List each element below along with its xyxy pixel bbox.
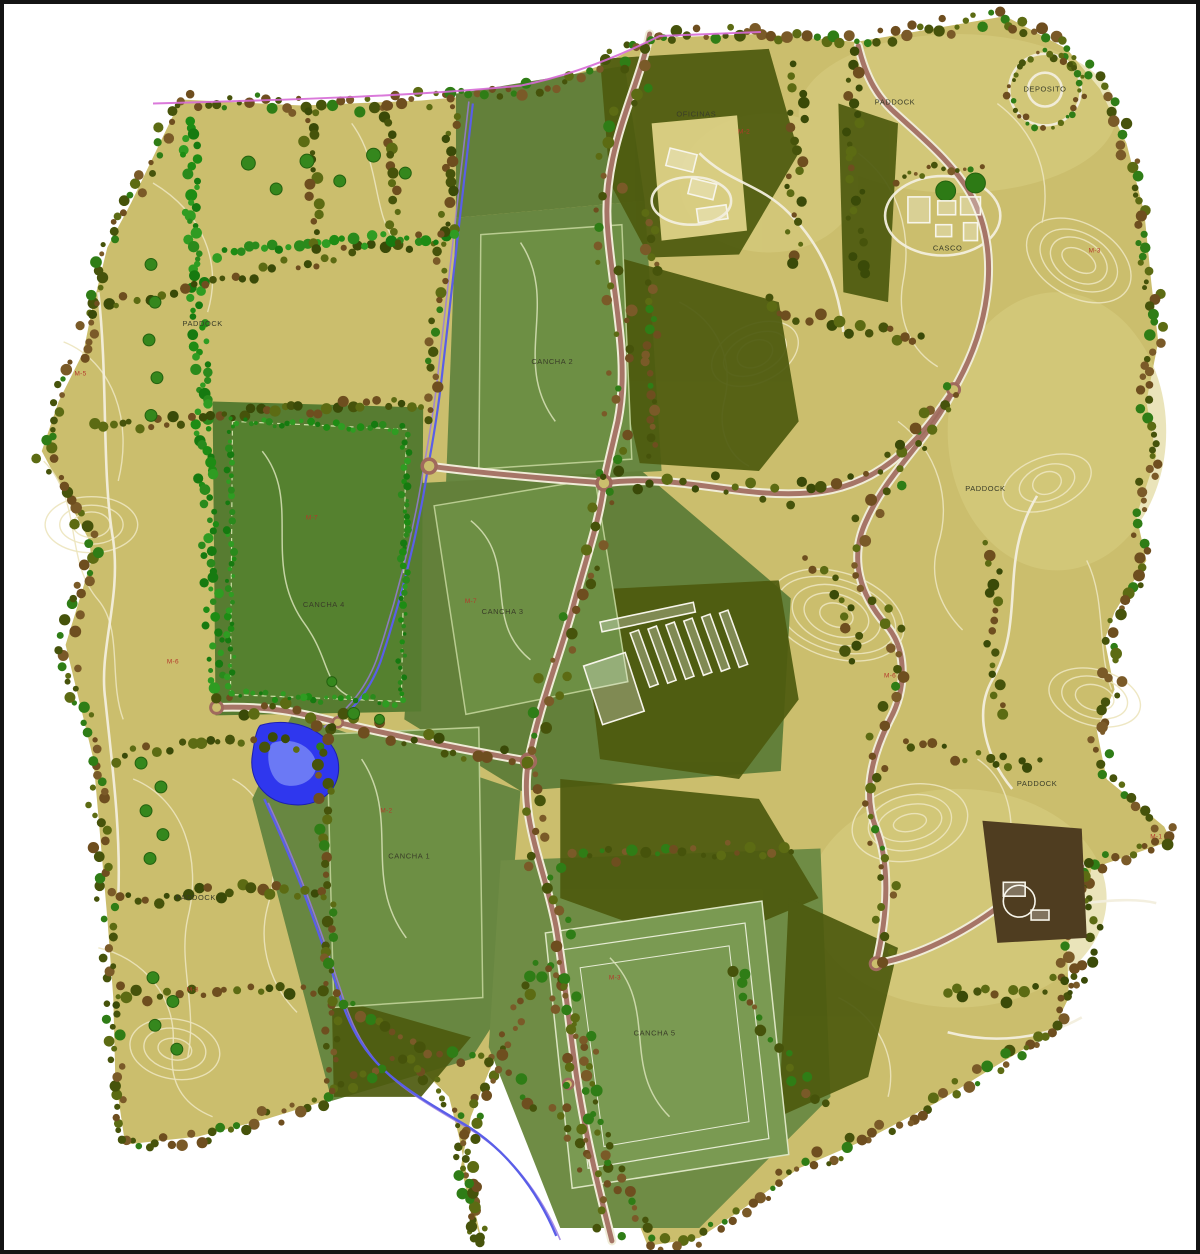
- tree-dot: [888, 948, 895, 955]
- tree-dot: [640, 244, 651, 255]
- tree-dot: [299, 419, 304, 424]
- tree-dot: [441, 268, 447, 274]
- tree-dot: [304, 192, 313, 201]
- tree-dot: [606, 370, 612, 376]
- tree-dot: [1133, 192, 1138, 197]
- tree-dot: [652, 266, 662, 276]
- tree-dot: [569, 646, 577, 654]
- tree-dot: [76, 589, 86, 599]
- tree-dot: [784, 184, 789, 189]
- tree-dot: [243, 688, 249, 694]
- tree-dot: [395, 658, 401, 664]
- tree-dot: [581, 1070, 592, 1081]
- tree-dot: [1141, 231, 1148, 238]
- tree-dot: [716, 851, 726, 861]
- tree-dot: [395, 239, 402, 246]
- tree-dot: [561, 1005, 572, 1016]
- tree-dot: [855, 320, 866, 331]
- tree-dot: [460, 1165, 466, 1171]
- tree-dot: [414, 1065, 422, 1073]
- map-canvas[interactable]: PADDOCK PADDOCK PADDOCK PADDOCK PADDOCK …: [0, 0, 1200, 1254]
- tree-dot: [159, 1133, 168, 1142]
- tree-dot: [321, 403, 332, 414]
- tree-dot: [871, 825, 879, 833]
- tree-dot: [94, 301, 100, 307]
- tree-dot: [454, 113, 461, 120]
- tree-dot: [354, 106, 365, 117]
- tree-dot: [1014, 72, 1019, 77]
- tree-dot: [879, 864, 884, 869]
- tree-dot: [794, 1166, 799, 1171]
- tree-dot: [865, 329, 874, 338]
- tree-dot: [798, 97, 810, 109]
- tree-dot: [525, 989, 536, 1000]
- tree-dot: [643, 341, 652, 350]
- tree-dot: [314, 198, 325, 209]
- tree-dot: [363, 398, 370, 405]
- tree-dot: [228, 690, 235, 697]
- tree-dot: [404, 526, 412, 534]
- tree-dot: [880, 618, 891, 629]
- tree-dot: [1033, 1031, 1044, 1042]
- tree-dot: [549, 1104, 557, 1112]
- tree-dot: [249, 421, 254, 426]
- tree-dot: [645, 219, 653, 227]
- tree-dot: [298, 136, 310, 148]
- parcel-code: M-7: [306, 515, 318, 522]
- tree-dot: [648, 1235, 655, 1242]
- tree-dot: [438, 211, 445, 218]
- tree-dot: [1080, 75, 1084, 79]
- tree-dot: [424, 337, 433, 346]
- tree-dot: [826, 1161, 831, 1166]
- tree-dot: [180, 283, 191, 294]
- tree-dot: [573, 1033, 579, 1039]
- tree-dot: [157, 993, 163, 999]
- tree-dot: [380, 231, 386, 237]
- tree-dot: [649, 405, 660, 416]
- tree-dot: [868, 596, 877, 605]
- tree-dot: [877, 874, 884, 881]
- tree-dot: [1136, 210, 1147, 221]
- tree-dot: [1108, 627, 1119, 638]
- tree-dot: [187, 1130, 195, 1138]
- tree-dot: [1017, 64, 1023, 70]
- tree-dot: [399, 596, 404, 601]
- tree-dot: [810, 1161, 819, 1170]
- tree-dot: [851, 196, 861, 206]
- tree-dot: [64, 692, 75, 703]
- building: [1003, 882, 1025, 896]
- tree-dot: [529, 1104, 537, 1112]
- tree-dot: [699, 1228, 707, 1236]
- tree-dot: [136, 1143, 143, 1150]
- tree-dot: [941, 166, 946, 171]
- tree-dot: [367, 1073, 378, 1084]
- tree-dot: [157, 152, 164, 159]
- tree-dot: [230, 600, 235, 605]
- tree-dot: [1135, 197, 1143, 205]
- tree-dot: [811, 1146, 822, 1157]
- tree-dot: [550, 658, 555, 663]
- tree-dot: [442, 278, 448, 284]
- tree-dot: [880, 721, 891, 732]
- tree-dot: [902, 174, 907, 179]
- tree-dot: [600, 474, 606, 480]
- tree-dot: [775, 1169, 782, 1176]
- tree-dot: [204, 338, 210, 344]
- tree-dot: [445, 222, 450, 227]
- tree-dot: [332, 695, 337, 700]
- tree-dot: [400, 539, 407, 546]
- tree-dot: [79, 560, 90, 571]
- tree-dot: [402, 439, 408, 445]
- tree-dot: [1153, 440, 1160, 447]
- tree-dot: [1145, 367, 1154, 376]
- tree-dot: [915, 440, 922, 447]
- tree-dot: [717, 1225, 725, 1233]
- tree-dot: [990, 990, 998, 998]
- tree-dot: [1133, 569, 1145, 581]
- tree-dot: [314, 824, 325, 835]
- tree-dot: [759, 496, 766, 503]
- tree-dot: [225, 500, 230, 505]
- tree-dot: [600, 1196, 607, 1203]
- tree-dot: [424, 393, 433, 402]
- tree-dot: [696, 1242, 702, 1248]
- tree-dot: [857, 585, 864, 592]
- tree-dot: [1093, 747, 1099, 753]
- tree-dot: [314, 229, 320, 235]
- tree-dot: [962, 758, 967, 763]
- tree-dot: [927, 165, 931, 169]
- tree-dot: [88, 320, 94, 326]
- tree-dot: [228, 625, 235, 632]
- tree-dot: [1126, 793, 1136, 803]
- tree-dot: [104, 298, 116, 310]
- tree-dot: [404, 612, 408, 616]
- tree-dot: [786, 173, 792, 179]
- tree-dot: [324, 1078, 330, 1084]
- tree-dot: [400, 445, 405, 450]
- tree-dot: [1060, 58, 1067, 65]
- tree-dot: [187, 329, 198, 340]
- tree-dot: [972, 1064, 982, 1074]
- tree-dot: [1131, 802, 1141, 812]
- tree-dot: [1118, 130, 1128, 140]
- tree-dot: [988, 10, 994, 16]
- tree-dot: [370, 694, 376, 700]
- tree-dot: [415, 231, 422, 238]
- tree-dot: [711, 471, 720, 480]
- tree-dot: [437, 230, 444, 237]
- tree-dot: [432, 381, 443, 392]
- tree-dot: [228, 567, 233, 572]
- tree-dot: [196, 250, 203, 257]
- tree-dot: [290, 419, 296, 425]
- tree-dot: [248, 708, 260, 720]
- tree-dot: [583, 1138, 588, 1143]
- tree-dot: [1098, 770, 1107, 779]
- tree: [334, 175, 346, 187]
- tree-dot: [919, 740, 927, 748]
- tree-dot: [396, 98, 407, 109]
- tree-dot: [1139, 253, 1147, 261]
- tree-dot: [94, 896, 100, 902]
- tree-dot: [169, 119, 175, 125]
- tree-dot: [101, 242, 106, 247]
- tree-dot: [329, 908, 337, 916]
- tree-dot: [323, 872, 329, 878]
- tree-dot: [471, 1118, 482, 1129]
- tree-dot: [859, 535, 871, 547]
- tree: [367, 148, 381, 162]
- tree-dot: [602, 411, 608, 417]
- tree-dot: [112, 1001, 120, 1009]
- tree-dot: [632, 484, 643, 495]
- tree-dot: [59, 475, 64, 480]
- tree-dot: [341, 245, 347, 251]
- tree-dot: [31, 454, 41, 464]
- tree-dot: [281, 1108, 286, 1113]
- tree-dot: [436, 287, 447, 298]
- tree-dot: [46, 469, 52, 475]
- tree-dot: [1150, 453, 1156, 459]
- tree-dot: [838, 1156, 843, 1161]
- field-label-cancha-2: CANCHA 2: [531, 357, 573, 366]
- tree-dot: [294, 893, 301, 900]
- tree-dot: [226, 607, 233, 614]
- tree-dot: [796, 196, 806, 206]
- tree-dot: [405, 499, 409, 503]
- tree-dot: [398, 680, 403, 685]
- tree-dot: [420, 235, 431, 246]
- tree-dot: [214, 588, 224, 598]
- tree-dot: [116, 892, 125, 901]
- tree-dot: [433, 374, 440, 381]
- tree-dot: [1073, 97, 1078, 102]
- tree-dot: [322, 814, 332, 824]
- tree-dot: [1107, 107, 1117, 117]
- field-label-cancha-5: CANCHA 5: [634, 1028, 676, 1037]
- tree-dot: [990, 662, 996, 668]
- tree-dot: [229, 460, 235, 466]
- tree-dot: [510, 1004, 516, 1010]
- tree-dot: [327, 996, 337, 1006]
- tree-dot: [126, 419, 132, 425]
- tree-dot: [190, 364, 201, 375]
- tree-dot: [572, 606, 580, 614]
- tree-dot: [613, 455, 622, 464]
- tree-dot: [890, 891, 897, 898]
- tree-dot: [658, 1247, 664, 1250]
- tree-dot: [557, 1112, 565, 1120]
- tree-dot: [97, 818, 106, 827]
- tree-dot: [603, 120, 615, 132]
- tree-dot: [293, 746, 300, 753]
- tree-dot: [976, 750, 982, 756]
- tree-dot: [1000, 702, 1006, 708]
- tree-dot: [464, 90, 472, 98]
- tree-dot: [1134, 552, 1145, 563]
- tree-dot: [222, 247, 228, 253]
- tree-dot: [1149, 348, 1156, 355]
- tree-dot: [893, 180, 900, 187]
- tree-dot: [522, 807, 531, 816]
- tree-dot: [540, 722, 552, 734]
- tree-dot: [259, 691, 263, 695]
- tree-dot: [1056, 958, 1066, 968]
- tree-dot: [859, 189, 865, 195]
- tree-dot: [304, 107, 312, 115]
- tree-dot: [296, 265, 301, 270]
- tree-dot: [985, 588, 995, 598]
- tree-dot: [182, 168, 193, 179]
- tree-dot: [900, 332, 910, 342]
- building-label-offices: OFICINAS: [676, 109, 716, 118]
- tree-dot: [1114, 693, 1120, 699]
- tree-dot: [732, 1207, 739, 1214]
- tree-dot: [942, 744, 947, 749]
- tree-dot: [842, 1142, 853, 1153]
- tree-dot: [228, 416, 232, 420]
- tree-dot: [99, 251, 104, 256]
- tree-dot: [780, 310, 790, 320]
- tree-dot: [617, 183, 628, 194]
- tree-dot: [225, 683, 232, 690]
- tree-dot: [400, 464, 407, 471]
- tree-dot: [231, 248, 239, 256]
- tree-dot: [626, 345, 635, 354]
- tree-dot: [988, 627, 996, 635]
- tree-dot: [281, 734, 290, 743]
- tree-dot: [276, 982, 285, 991]
- tree-dot: [228, 541, 234, 547]
- tree-dot: [330, 1049, 337, 1056]
- tree-dot: [981, 985, 990, 994]
- tree-dot: [211, 509, 217, 515]
- tree-dot: [645, 479, 653, 487]
- tree-dot: [1056, 1007, 1063, 1014]
- tree-dot: [747, 999, 754, 1006]
- tree-dot: [708, 1222, 713, 1227]
- tree-dot: [950, 756, 960, 766]
- tree-dot: [632, 1215, 639, 1222]
- tree-dot: [549, 895, 558, 904]
- tree-dot: [213, 521, 219, 527]
- tree-dot: [398, 1034, 403, 1039]
- tree-dot: [907, 20, 916, 29]
- tree-dot: [802, 1072, 812, 1082]
- tree-dot: [219, 637, 224, 642]
- tree-dot: [404, 502, 409, 507]
- tree-dot: [840, 623, 851, 634]
- tree-dot: [110, 1024, 116, 1030]
- tree-dot: [436, 1088, 441, 1093]
- tree-dot: [450, 750, 457, 757]
- tree-dot: [624, 318, 630, 324]
- tree-dot: [517, 998, 524, 1005]
- tree-dot: [465, 1179, 475, 1189]
- tree-dot: [619, 447, 627, 455]
- tree-dot: [88, 756, 98, 766]
- tree-dot: [551, 1004, 561, 1014]
- tree-dot: [815, 308, 827, 320]
- tree-dot: [224, 673, 231, 680]
- tree-dot: [450, 104, 455, 109]
- tree-dot: [849, 98, 859, 108]
- tree-dot: [315, 772, 322, 779]
- tree-dot: [289, 1103, 294, 1108]
- tree-dot: [723, 490, 728, 495]
- tree-dot: [601, 173, 607, 179]
- tree-dot: [399, 601, 407, 609]
- tree-dot: [142, 897, 149, 904]
- tree-dot: [990, 617, 998, 625]
- tree-dot: [203, 533, 213, 543]
- tree-dot: [195, 301, 203, 309]
- tree-dot: [194, 883, 205, 894]
- tree-dot: [232, 273, 240, 281]
- tree-dot: [392, 428, 399, 435]
- field-label-cancha-3: CANCHA 3: [482, 607, 524, 616]
- tree-dot: [903, 738, 909, 744]
- tree-dot: [54, 646, 62, 654]
- tree-dot: [385, 735, 396, 746]
- tree-dot: [399, 548, 407, 556]
- tree-dot: [330, 901, 336, 907]
- tree-dot: [130, 745, 136, 751]
- tree-dot: [301, 984, 307, 990]
- tree-dot: [278, 1119, 284, 1125]
- tree-dot: [318, 700, 323, 705]
- tree-dot: [127, 192, 134, 199]
- tree-dot: [388, 130, 397, 139]
- tree-dot: [403, 654, 407, 658]
- tree-dot: [612, 395, 621, 404]
- tree-dot: [112, 1072, 122, 1082]
- tree-dot: [207, 559, 216, 568]
- tree-dot: [586, 579, 597, 590]
- tree: [149, 296, 161, 308]
- tree-dot: [81, 354, 90, 363]
- tree-dot: [869, 753, 876, 760]
- tree-dot: [648, 383, 654, 389]
- tree-dot: [898, 671, 910, 683]
- tree-dot: [380, 1021, 391, 1032]
- tree-dot: [164, 133, 175, 144]
- tree-dot: [108, 888, 117, 897]
- tree-dot: [878, 701, 889, 712]
- tree-dot: [446, 146, 456, 156]
- tree-dot: [643, 1223, 653, 1233]
- tree-dot: [567, 849, 576, 858]
- tree-dot: [839, 645, 851, 657]
- tree-dot: [231, 424, 235, 428]
- tree-dot: [872, 773, 882, 783]
- tree-dot: [400, 639, 405, 644]
- tree-dot: [810, 1094, 820, 1104]
- tree-dot: [338, 396, 349, 407]
- tree: [135, 757, 147, 769]
- tree-dot: [467, 1161, 479, 1173]
- tree-dot: [362, 693, 369, 700]
- tree-dot: [1107, 618, 1112, 623]
- tree-dot: [321, 860, 329, 868]
- tree-dot: [215, 660, 223, 668]
- tree-dot: [999, 753, 1007, 761]
- tree-dot: [110, 421, 118, 429]
